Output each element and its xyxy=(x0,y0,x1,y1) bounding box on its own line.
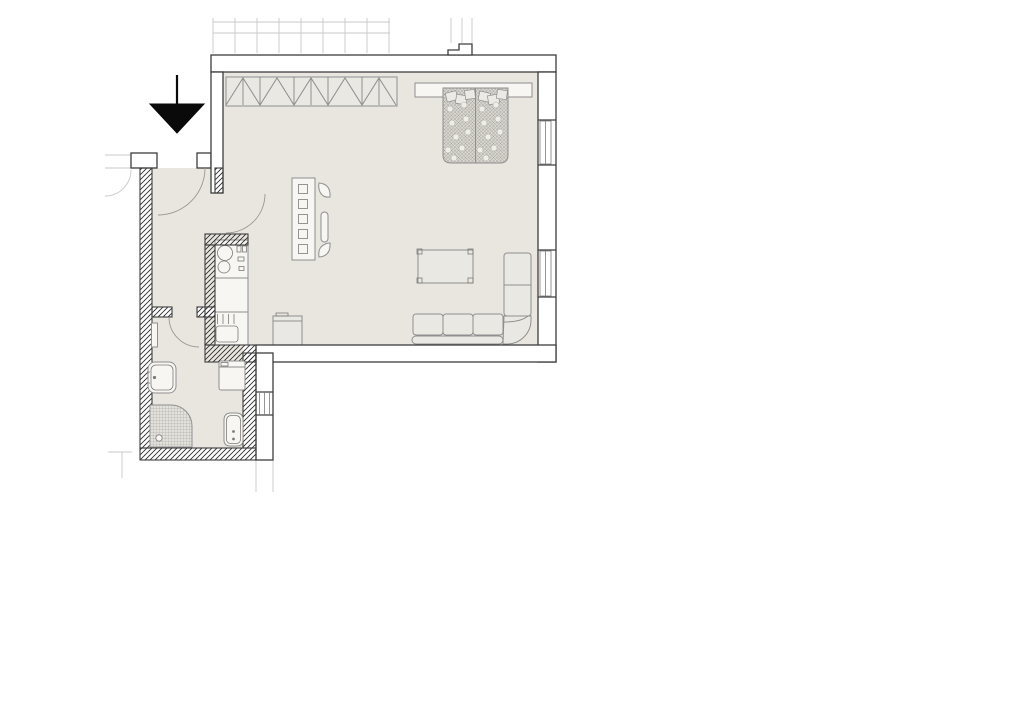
wall-door-stub xyxy=(215,168,223,193)
wall-right xyxy=(538,72,556,362)
sofa-front-rail xyxy=(412,336,503,344)
wall-kitchen-stub xyxy=(205,234,248,245)
wall-entry-top xyxy=(197,153,211,168)
wall-top xyxy=(211,55,556,72)
wall-bath-top-left xyxy=(152,307,172,317)
shower-drain xyxy=(156,435,162,441)
radiator xyxy=(152,323,158,347)
shower xyxy=(150,405,192,447)
coffee-table xyxy=(417,249,473,283)
washbasin xyxy=(147,362,176,393)
balcony-railing xyxy=(213,18,472,53)
bathroom-doorway-floor xyxy=(172,307,198,317)
washing-machine xyxy=(219,361,245,390)
wall-bottom-main xyxy=(256,345,556,362)
stool xyxy=(273,313,302,345)
toilet xyxy=(224,413,243,446)
wall-kitchen-west xyxy=(205,245,215,345)
entrance-arrow-icon xyxy=(150,75,204,133)
floor-plan-page xyxy=(0,0,1024,724)
wall-bottom-bath xyxy=(140,448,256,460)
sofa-cushion xyxy=(413,314,443,335)
shelving-unit xyxy=(292,178,315,260)
floor-plan-drawing xyxy=(0,0,1024,724)
neighbour-landing-lines xyxy=(105,155,131,196)
sofa-cushion xyxy=(443,314,473,335)
wardrobe xyxy=(226,77,397,106)
sofa-cushion xyxy=(473,314,503,335)
kitchen-counter xyxy=(215,240,248,345)
wall-top-notch xyxy=(448,44,472,55)
entrance-threshold xyxy=(131,153,157,168)
